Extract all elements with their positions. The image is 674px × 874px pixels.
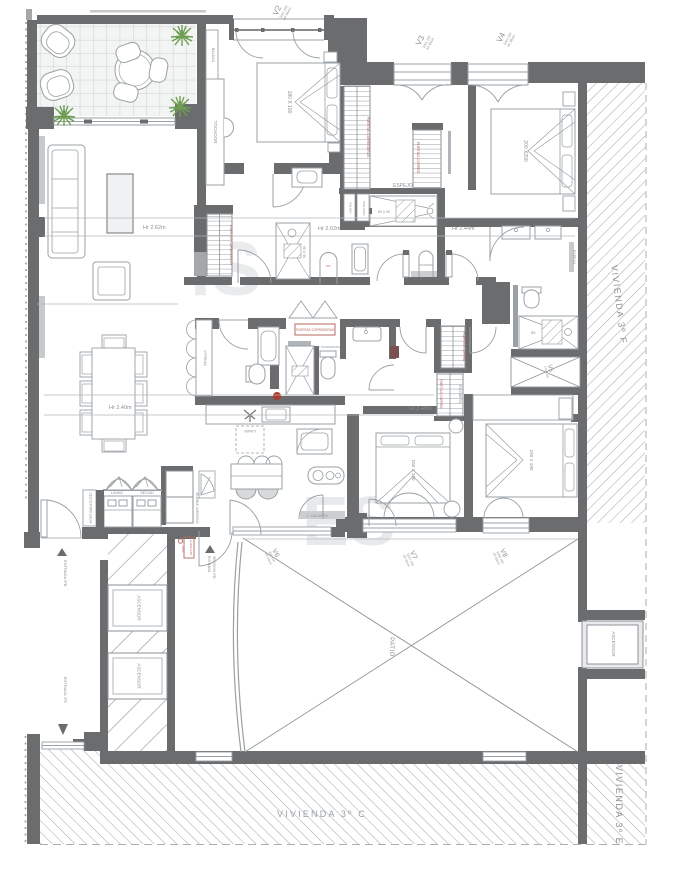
svg-text:ASCENSOR: ASCENSOR <box>137 595 142 621</box>
svg-text:VITRINA: VITRINA <box>203 350 208 366</box>
svg-text:150 X 190: 150 X 190 <box>529 450 534 471</box>
svg-text:ESPEJO: ESPEJO <box>393 183 413 189</box>
svg-text:ASCENSOR: ASCENSOR <box>137 663 142 689</box>
svg-text:MUEBLE ZAPATERO: MUEBLE ZAPATERO <box>195 493 199 524</box>
svg-text:LAVAV: LAVAV <box>244 429 256 434</box>
svg-text:WC SUSPENDIDO: WC SUSPENDIDO <box>316 345 341 349</box>
svg-text:180 X 190: 180 X 190 <box>286 91 292 114</box>
svg-text:85: 85 <box>531 330 536 335</box>
svg-text:CESTO ROPA SUCIA: CESTO ROPA SUCIA <box>89 492 93 524</box>
svg-text:ENTRADA 3ºB: ENTRADA 3ºB <box>63 560 68 587</box>
svg-text:90 X 90: 90 X 90 <box>302 246 306 258</box>
svg-text:ENTRADA 3ºC: ENTRADA 3ºC <box>63 677 68 704</box>
svg-text:Hr 2.62m: Hr 2.62m <box>318 226 341 232</box>
svg-text:ESPEJO: ESPEJO <box>572 250 576 264</box>
svg-text:VIVIENDA 3º E: VIVIENDA 3º E <box>614 765 624 845</box>
svg-text:SECAD: SECAD <box>140 490 154 495</box>
svg-text:LAVAD: LAVAD <box>111 490 124 495</box>
svg-text:Hr 2.40m: Hr 2.40m <box>409 406 432 412</box>
svg-text:VIVIENDA 3º C: VIVIENDA 3º C <box>277 809 367 819</box>
svg-text:ENTRADA: ENTRADA <box>207 556 211 573</box>
svg-text:PUERTAS CORREDERAS: PUERTAS CORREDERAS <box>296 328 334 332</box>
svg-text:90 X 90: 90 X 90 <box>378 210 390 214</box>
svg-text:PUERTAS CORREDERAS: PUERTAS CORREDERAS <box>366 117 370 158</box>
svg-text:200 X200: 200 X200 <box>522 140 528 162</box>
svg-text:CISTERNA: CISTERNA <box>419 263 432 267</box>
svg-text:GAS: GAS <box>181 546 185 552</box>
svg-text:ASCENSOR: ASCENSOR <box>611 631 616 657</box>
svg-text:SERVICIO 3ºB: SERVICIO 3ºB <box>212 556 216 579</box>
svg-text:PUERTAS CORRED.: PUERTAS CORRED. <box>439 379 443 409</box>
svg-text:PUERTAS CORREDERAS: PUERTAS CORREDERAS <box>229 225 233 266</box>
svg-text:Hr 2.44m: Hr 2.44m <box>452 226 475 232</box>
svg-text:C. CALDERA: C. CALDERA <box>306 514 328 518</box>
svg-text:ESCOBERO: ESCOBERO <box>458 385 462 404</box>
svg-text:Hr 2.62m: Hr 2.62m <box>143 225 166 231</box>
svg-text:BALDAS: BALDAS <box>349 202 353 213</box>
svg-text:WC: WC <box>326 264 330 268</box>
svg-text:PATIO: PATIO <box>388 637 394 657</box>
svg-text:150 X 190: 150 X 190 <box>411 460 416 481</box>
svg-text:PUERTAS CORRED.: PUERTAS CORRED. <box>416 142 420 174</box>
svg-text:TOCADOR: TOCADOR <box>213 121 218 145</box>
svg-text:TOALLERO: TOALLERO <box>362 201 366 217</box>
svg-text:PUERTAS CORRED.: PUERTAS CORRED. <box>462 332 466 362</box>
svg-text:LLAVE GAS: LLAVE GAS <box>189 540 193 555</box>
svg-text:Hr 2.40m: Hr 2.40m <box>109 405 132 411</box>
svg-text:BALDAS: BALDAS <box>211 48 215 63</box>
